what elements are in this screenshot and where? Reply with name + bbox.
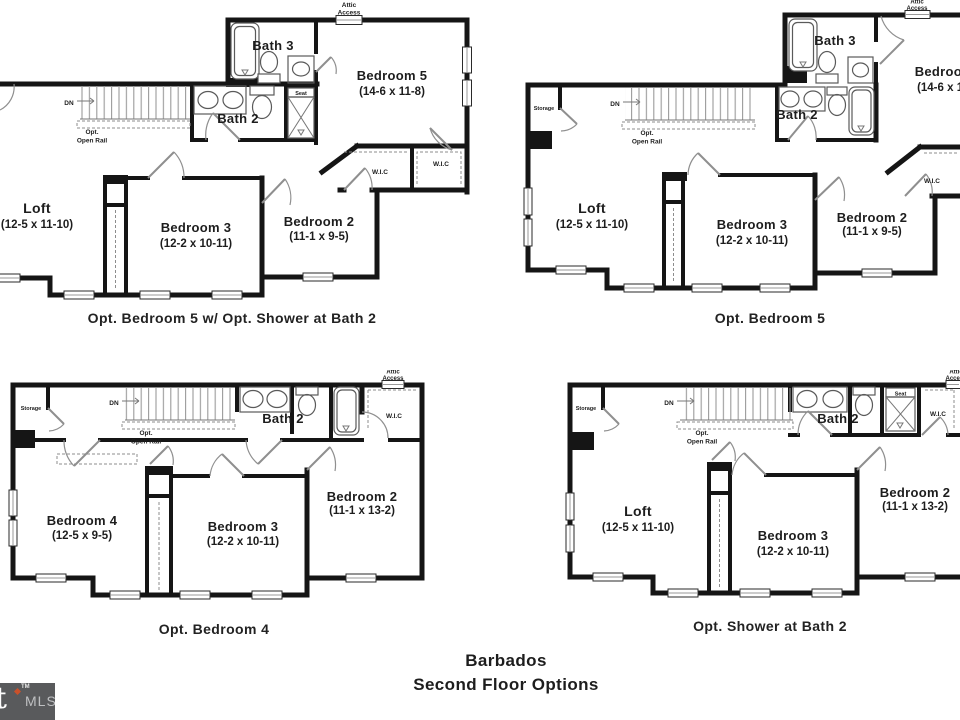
bath3-fixtures [231, 23, 314, 83]
windows [524, 11, 930, 293]
toilet [853, 387, 875, 395]
caption-bottom-right: Opt. Shower at Bath 2 [560, 618, 960, 634]
sink [288, 56, 314, 83]
svg-text:(12-2 x 10-11): (12-2 x 10-11) [757, 546, 829, 558]
svg-text:Access: Access [906, 6, 928, 12]
storage-label: Storage [21, 406, 41, 412]
storage-label: Storage [534, 106, 554, 112]
stairs: DN Opt. Open Rail [64, 86, 190, 145]
svg-text:Access: Access [945, 376, 960, 382]
bath3-label: Bath 3 [252, 38, 294, 53]
open-rail-label: Opt. [140, 430, 153, 437]
bathtub [849, 87, 874, 135]
open-rail-label: Opt. [86, 129, 99, 136]
dn-label: DN [109, 400, 119, 407]
svg-text:(11-1 x 13-2): (11-1 x 13-2) [329, 505, 395, 517]
svg-text:(12-5 x 9-5): (12-5 x 9-5) [52, 530, 112, 542]
bedroom3-label: Bedroom 3 [717, 217, 788, 232]
wic2-label: W.I.C [433, 161, 449, 168]
sink [848, 57, 873, 83]
toilet [296, 387, 318, 395]
plan-name: Barbados [46, 649, 960, 673]
bedroom3-label: Bedroom 3 [161, 220, 232, 235]
mls-watermark: t TM MLS [0, 683, 55, 720]
bath2-label: Bath 2 [776, 107, 818, 122]
mls-label: MLS [25, 693, 55, 709]
bath3-label: Bath 3 [814, 33, 856, 48]
svg-text:(12-2 x 10-11): (12-2 x 10-11) [160, 238, 232, 250]
floorplan-opt-bedroom5: DN Opt. Open Rail [520, 0, 960, 305]
bedroom2-label: Bedroom 2 [284, 214, 355, 229]
floorplan-opt-shower-bath2: DN Opt. Open Rail Seat [560, 370, 960, 615]
bedroom5-label: Bedroom 5 [357, 68, 428, 83]
bath2-label: Bath 2 [817, 411, 859, 426]
svg-text:Access: Access [338, 10, 361, 17]
stairs: DN Opt. Open Rail [664, 388, 793, 446]
svg-text:(12-2 x 10-11): (12-2 x 10-11) [716, 235, 788, 247]
mls-logo-glyph: t [0, 683, 7, 716]
stairs: DN Opt. Open Rail [610, 88, 755, 146]
wic-label: W.I.C [386, 413, 402, 420]
dn-label: DN [610, 101, 620, 108]
caption-top-right: Opt. Bedroom 5 [550, 310, 960, 326]
sheet-title: Barbados Second Floor Options [46, 649, 960, 697]
mls-logo-spark-icon [14, 688, 21, 695]
svg-text:(12-2 x 10-11): (12-2 x 10-11) [207, 536, 279, 548]
svg-text:(12-5 x 11-10): (12-5 x 11-10) [556, 219, 628, 231]
caption-top-left: Opt. Bedroom 5 w/ Opt. Shower at Bath 2 [0, 310, 464, 326]
svg-text:(12-5 x 11-10): (12-5 x 11-10) [602, 522, 674, 534]
loft-label: Loft [578, 200, 606, 216]
svg-text:Access: Access [382, 376, 404, 382]
caption-bottom-left: Opt. Bedroom 4 [0, 621, 428, 637]
dn-label: DN [64, 100, 74, 107]
attic-access-label: Attic [949, 370, 960, 376]
bedroom2-label: Bedroom 2 [837, 210, 908, 225]
bedroom2-label: Bedroom 2 [327, 489, 398, 504]
wic-label: W.I.C [924, 178, 940, 185]
double-vanity [240, 387, 290, 412]
bath2-label: Bath 2 [262, 411, 304, 426]
open-rail-label: Opt. [696, 430, 709, 437]
shower: Seat [288, 88, 314, 138]
trademark-label: TM [21, 684, 30, 690]
bath2-label: Bath 2 [217, 111, 259, 126]
bedroom5-label: Bedroom 5 [915, 64, 960, 79]
svg-text:(14-6 x 11-8): (14-6 x 11-8) [359, 86, 425, 98]
storage-label: Storage [576, 406, 596, 412]
dn-label: DN [664, 400, 674, 407]
svg-text:(11-1 x 9-5): (11-1 x 9-5) [842, 226, 902, 238]
floorplan-opt-bedroom4: DN Opt. Open Rail Attic [0, 370, 440, 615]
bathtub [334, 387, 359, 435]
floorplan-opt-bedroom5-with-shower: DN Opt. Open Rail Seat [0, 0, 475, 305]
bedroom3-label: Bedroom 3 [208, 519, 279, 534]
toilet [816, 74, 838, 83]
svg-text:(14-6 x 11-8): (14-6 x 11-8) [917, 82, 960, 94]
svg-text:Open Rail: Open Rail [687, 439, 718, 446]
wic-label: W.I.C [930, 411, 946, 418]
wic1-label: W.I.C [372, 169, 388, 176]
sheet-subtitle: Second Floor Options [46, 673, 960, 697]
bedroom3-label: Bedroom 3 [758, 528, 829, 543]
toilet [827, 87, 847, 95]
svg-text:(12-5 x 11-10): (12-5 x 11-10) [1, 219, 73, 231]
bedroom2-label: Bedroom 2 [880, 485, 951, 500]
double-vanity [194, 86, 246, 114]
toilet [258, 74, 280, 83]
attic-access-label: Attic [342, 2, 357, 9]
bathtub [789, 19, 817, 71]
svg-text:(11-1 x 13-2): (11-1 x 13-2) [882, 501, 948, 513]
seat-label: Seat [295, 91, 307, 97]
toilet [250, 86, 274, 95]
stairs: DN Opt. Open Rail [109, 388, 235, 446]
shower: Seat [886, 388, 915, 431]
svg-text:Open Rail: Open Rail [632, 139, 663, 146]
bedroom4-label: Bedroom 4 [47, 513, 118, 528]
double-vanity [793, 387, 847, 412]
attic-access-label: Attic [386, 370, 400, 376]
attic-access-label: Attic [910, 0, 924, 6]
svg-text:Open Rail: Open Rail [131, 439, 162, 446]
svg-text:(11-1 x 9-5): (11-1 x 9-5) [289, 231, 349, 243]
loft-label: Loft [624, 503, 652, 519]
walls [528, 15, 960, 288]
svg-text:Open Rail: Open Rail [77, 138, 108, 145]
loft-label: Loft [23, 200, 51, 216]
open-rail-label: Opt. [641, 130, 654, 137]
